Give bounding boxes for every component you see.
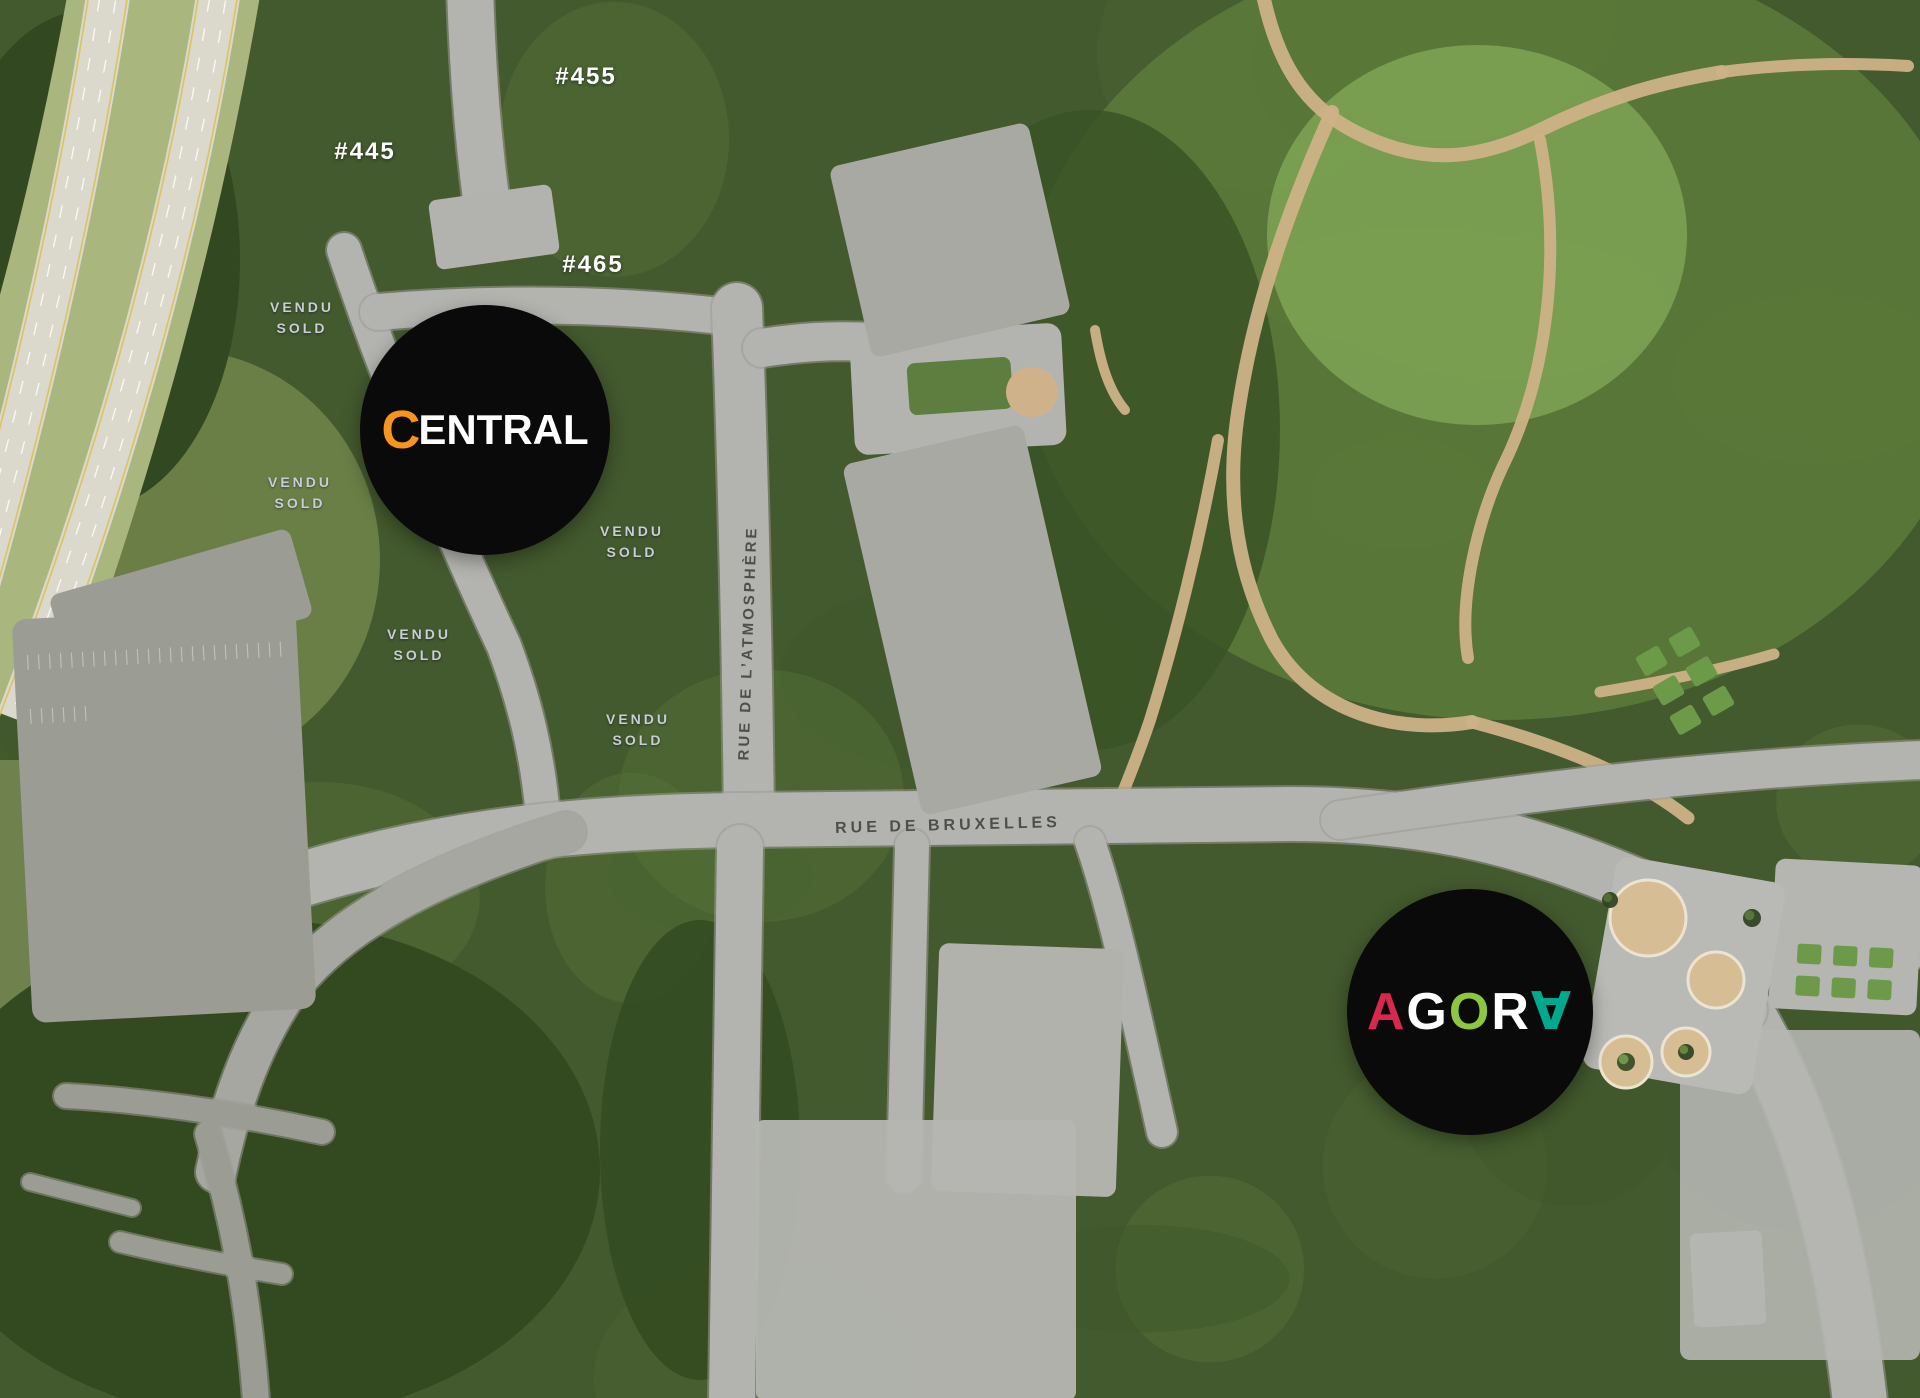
central-logo: C ENTRAL — [381, 403, 588, 457]
site-plan-map: #445 #455 #465 VENDU SOLD VENDU SOLD VEN… — [0, 0, 1920, 1398]
sold-label-line1: VENDU — [606, 709, 670, 730]
central-badge[interactable]: C ENTRAL — [360, 305, 610, 555]
sold-label-line2: SOLD — [606, 730, 670, 751]
agora-logo: A G O R ∀ — [1367, 986, 1573, 1038]
agora-letter-3: O — [1449, 986, 1491, 1038]
agora-letter-4: R — [1491, 986, 1531, 1038]
sold-label-line1: VENDU — [600, 521, 664, 542]
sold-label-line1: VENDU — [387, 624, 451, 645]
sold-label-line1: VENDU — [270, 297, 334, 318]
sold-label-3: VENDU SOLD — [387, 624, 451, 666]
agora-letter-5: ∀ — [1531, 986, 1573, 1038]
sold-label-line2: SOLD — [268, 493, 332, 514]
building-label-445: #445 — [334, 138, 395, 166]
sold-label-line2: SOLD — [600, 542, 664, 563]
sold-label-line2: SOLD — [270, 318, 334, 339]
sold-label-4: VENDU SOLD — [600, 521, 664, 563]
central-logo-text: ENTRAL — [418, 406, 588, 454]
sold-label-line1: VENDU — [268, 472, 332, 493]
building-label-465: #465 — [562, 251, 623, 279]
agora-letter-1: A — [1367, 986, 1407, 1038]
sold-label-2: VENDU SOLD — [268, 472, 332, 514]
agora-letter-2: G — [1406, 986, 1448, 1038]
agora-badge[interactable]: A G O R ∀ — [1347, 889, 1593, 1135]
site-plan-canvas — [0, 0, 1920, 1398]
sold-label-line2: SOLD — [387, 645, 451, 666]
sold-label-1: VENDU SOLD — [270, 297, 334, 339]
sold-label-5: VENDU SOLD — [606, 709, 670, 751]
plaza — [1581, 855, 1788, 1097]
central-logo-c: C — [381, 403, 420, 457]
building-label-455: #455 — [555, 63, 616, 91]
